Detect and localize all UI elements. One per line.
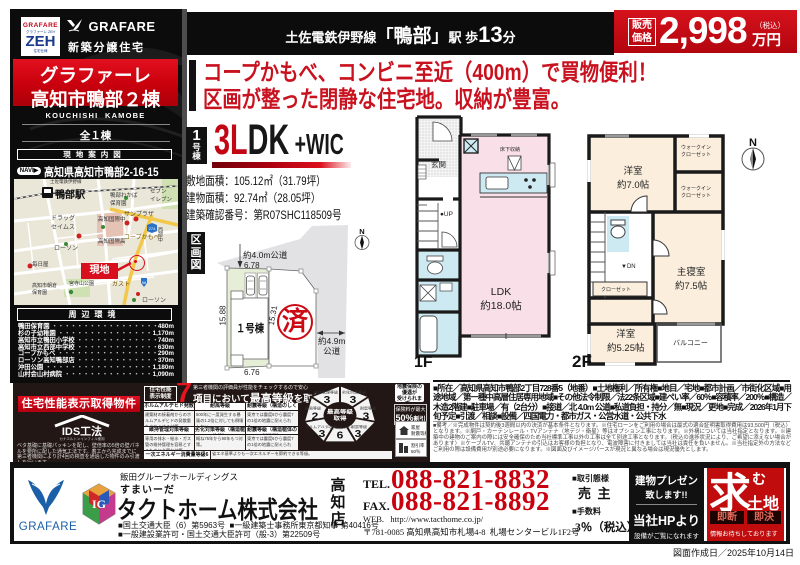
svg-text:2: 2 — [312, 411, 319, 422]
svg-text:3: 3 — [350, 395, 357, 406]
svg-text:3: 3 — [324, 395, 331, 406]
svg-text:GRAFARE: GRAFARE — [19, 521, 77, 533]
svg-text:6: 6 — [337, 431, 344, 442]
svg-text:割引率: 割引率 — [411, 442, 425, 449]
svg-text:家屋: 家屋 — [411, 424, 420, 431]
svg-text:耐風等級: 耐風等級 — [305, 406, 321, 410]
svg-text:耐震等級: 耐震等級 — [360, 406, 376, 410]
svg-text:3: 3 — [319, 429, 326, 440]
svg-text:IDS工法: IDS工法 — [62, 424, 102, 438]
svg-text:耐震等級: 耐震等級 — [411, 430, 426, 437]
svg-text:IG: IG — [92, 497, 106, 511]
svg-text:3: 3 — [355, 429, 362, 440]
svg-text:取得: 取得 — [334, 415, 347, 422]
svg-text:維持管理等級: 維持管理等級 — [314, 390, 338, 394]
svg-text:劣化対策等級: 劣化対策等級 — [342, 390, 366, 394]
svg-text:50％: 50％ — [411, 449, 421, 454]
svg-text:N: N — [359, 227, 364, 236]
svg-text:N: N — [749, 137, 757, 149]
svg-text:カナエルトンインフィル使用: カナエルトンインフィル使用 — [59, 436, 105, 441]
svg-text:274: 274 — [149, 226, 156, 231]
svg-text:56: 56 — [142, 280, 147, 285]
svg-text:3: 3 — [363, 411, 370, 422]
svg-text:最高等級: 最高等級 — [327, 408, 353, 415]
